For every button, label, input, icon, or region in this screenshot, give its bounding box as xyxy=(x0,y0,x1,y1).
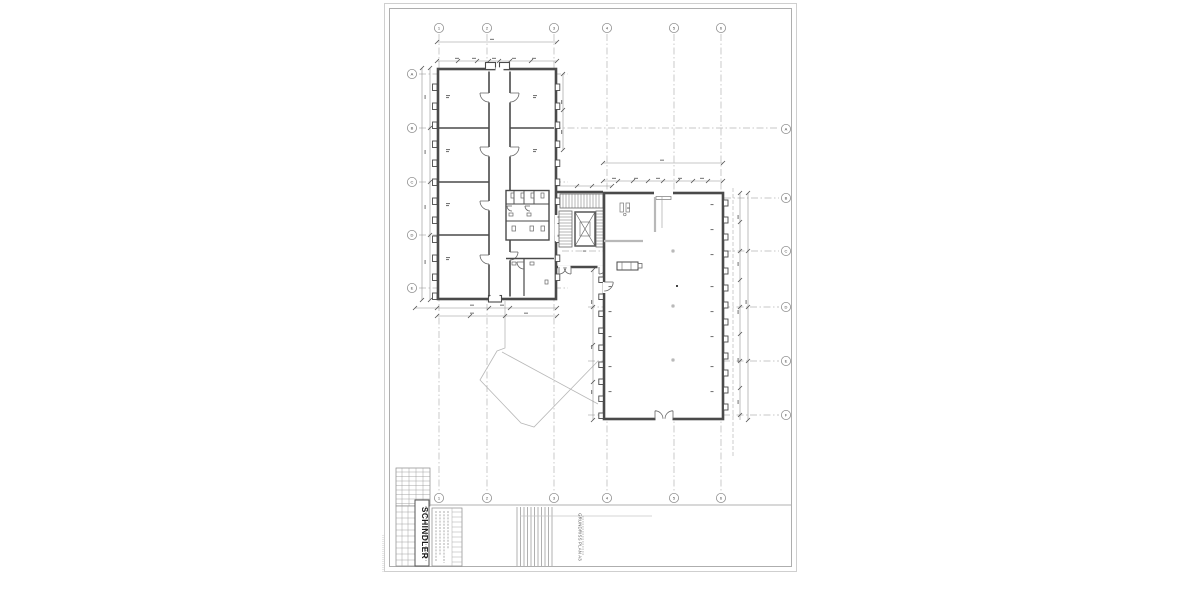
window-label-speck xyxy=(627,208,630,209)
facade-pilaster xyxy=(724,251,729,257)
facade-pilaster xyxy=(555,179,560,186)
wing-exterior-wall xyxy=(438,69,556,299)
facade-pilaster xyxy=(555,255,560,262)
grid-label: E xyxy=(411,285,414,290)
grid-label: D xyxy=(411,232,414,237)
facade-pilaster xyxy=(724,353,729,359)
dim-number-speck xyxy=(738,262,739,266)
window-label-speck xyxy=(711,254,714,255)
grid-label: C xyxy=(411,179,414,184)
hall-exterior-wall xyxy=(604,193,723,419)
facade-pilaster xyxy=(555,160,560,167)
room-label-speck xyxy=(446,259,449,260)
wall-opening xyxy=(496,67,504,70)
survey-mark xyxy=(676,285,678,287)
dim-number-speck xyxy=(738,215,739,219)
dim-number-speck xyxy=(700,178,704,179)
window-label-speck xyxy=(711,366,714,367)
facade-pilaster xyxy=(599,311,604,317)
dim-number-speck xyxy=(678,178,682,179)
dim-number-speck xyxy=(425,150,426,154)
window-label-speck xyxy=(609,336,612,337)
facade-pilaster xyxy=(433,274,438,281)
dim-number-speck xyxy=(561,130,562,134)
room-label-speck xyxy=(446,95,450,96)
brand-logo-text: SCHINDLER xyxy=(420,507,429,559)
room-label-speck xyxy=(446,205,449,206)
wall-opening xyxy=(491,294,500,297)
dim-number-speck xyxy=(738,310,739,314)
facade-pilaster xyxy=(433,84,438,91)
dim-number-speck xyxy=(660,160,664,161)
grid-label: A xyxy=(785,126,788,131)
window-label-speck xyxy=(711,336,714,337)
facade-pilaster xyxy=(724,200,729,206)
facade-pilaster xyxy=(433,179,438,186)
facade-pilaster xyxy=(555,84,560,91)
floor-plan-sheet-svg: 1 2 3 4 5 6 1 2 3 4 5 6 A xyxy=(0,0,1200,600)
facade-pilaster xyxy=(724,217,729,223)
dim-number-speck xyxy=(455,58,459,59)
window-label-speck xyxy=(609,286,612,287)
facade-pilaster xyxy=(433,160,438,167)
facade-pilaster xyxy=(599,362,604,368)
room-label-speck xyxy=(446,151,449,152)
dim-number-speck xyxy=(524,313,528,314)
facade-pilaster xyxy=(724,319,729,325)
window-label-speck xyxy=(711,286,714,287)
door-opening xyxy=(488,147,490,156)
door-opening xyxy=(488,255,490,264)
facade-pilaster xyxy=(599,294,604,300)
door-opening xyxy=(509,147,511,156)
room-label-speck xyxy=(533,95,537,96)
drawing-canvas: 1 2 3 4 5 6 1 2 3 4 5 6 A xyxy=(0,0,1200,600)
dim-number-speck xyxy=(512,58,516,59)
door-opening xyxy=(509,93,511,102)
dim-number-speck xyxy=(470,313,474,314)
grid-label: B xyxy=(785,195,788,200)
facade-pilaster xyxy=(433,236,438,243)
room-label-speck xyxy=(446,257,450,258)
facade-pilaster xyxy=(433,103,438,110)
grid-label: B xyxy=(411,125,414,130)
facade-pilaster xyxy=(724,387,729,393)
door-opening xyxy=(488,93,490,102)
room-label-speck xyxy=(446,149,450,150)
facade-pilaster xyxy=(724,370,729,376)
entry-porch xyxy=(486,63,496,70)
wall-opening xyxy=(555,215,558,241)
facade-pilaster xyxy=(433,293,438,300)
dim-number-speck xyxy=(472,58,476,59)
gate-opening xyxy=(654,191,673,194)
dim-number-speck xyxy=(425,205,426,209)
dim-number-speck xyxy=(470,305,474,306)
workbench xyxy=(617,262,638,270)
dim-number-speck xyxy=(738,358,739,362)
facade-pilaster xyxy=(555,103,560,110)
facade-pilaster xyxy=(433,217,438,224)
hall-plan xyxy=(599,191,728,420)
dim-number-speck xyxy=(492,58,496,59)
facade-pilaster xyxy=(724,234,729,240)
room-label-speck xyxy=(533,149,537,150)
dim-number-speck xyxy=(612,178,616,179)
room-label-speck xyxy=(533,151,536,152)
dim-number-speck xyxy=(500,305,504,306)
facade-pilaster xyxy=(724,336,729,342)
dim-number-speck xyxy=(591,300,592,304)
facade-pilaster xyxy=(724,268,729,274)
dim-number-speck xyxy=(634,178,638,179)
window-label-speck xyxy=(583,251,586,252)
dim-number-speck xyxy=(425,260,426,264)
window-label-speck xyxy=(711,311,714,312)
window-label-speck xyxy=(609,366,612,367)
facade-pilaster xyxy=(599,328,604,334)
dim-number-speck xyxy=(490,39,494,40)
dim-number-speck xyxy=(656,178,660,179)
facade-pilaster xyxy=(724,285,729,291)
grid-label: C xyxy=(785,248,788,253)
facade-pilaster xyxy=(555,274,560,281)
stair-run xyxy=(560,194,603,208)
dim-number-speck xyxy=(738,400,739,404)
dim-number-speck xyxy=(746,300,747,304)
window-label-speck xyxy=(711,229,714,230)
window-label-speck xyxy=(711,391,714,392)
room-label-speck xyxy=(446,97,449,98)
facade-pilaster xyxy=(724,302,729,308)
drawing-title-text: GRUNDRISS PLAN A3 xyxy=(578,513,583,561)
dim-number-speck xyxy=(591,345,592,349)
facade-pilaster xyxy=(599,345,604,351)
dim-number-speck xyxy=(591,390,592,394)
room-label-speck xyxy=(446,203,450,204)
dim-number-speck xyxy=(561,100,562,104)
window-label-speck xyxy=(609,391,612,392)
window-label-speck xyxy=(711,204,714,205)
facade-pilaster xyxy=(724,404,729,410)
facade-pilaster xyxy=(555,122,560,129)
grid-label: E xyxy=(785,358,788,363)
facade-pilaster xyxy=(555,141,560,148)
facade-pilaster xyxy=(433,198,438,205)
facade-pilaster xyxy=(599,379,604,385)
door-opening xyxy=(488,201,490,210)
room-label-speck xyxy=(533,97,536,98)
facade-pilaster xyxy=(433,141,438,148)
dim-number-speck xyxy=(532,58,536,59)
door-opening xyxy=(656,417,673,420)
facade-pilaster xyxy=(599,277,604,283)
facade-pilaster xyxy=(433,122,438,129)
facade-pilaster xyxy=(555,198,560,205)
grid-label: A xyxy=(411,71,414,76)
facade-pilaster xyxy=(433,255,438,262)
office-wing-plan xyxy=(433,63,560,303)
grid-label: D xyxy=(785,304,788,309)
dim-number-speck xyxy=(425,95,426,99)
window-label-speck xyxy=(609,311,612,312)
facade-pilaster xyxy=(599,413,604,419)
facade-pilaster xyxy=(599,396,604,402)
